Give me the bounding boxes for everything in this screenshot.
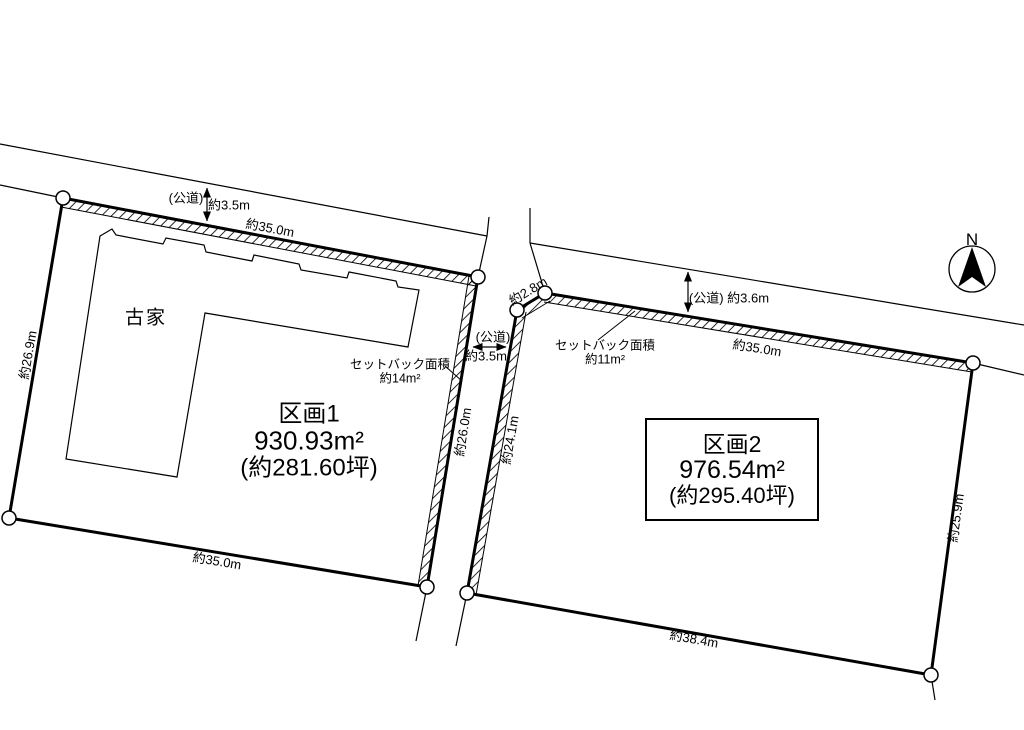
road-right-lower-edge <box>973 363 1024 375</box>
plot2-area-tsubo: (約295.40坪) <box>669 483 795 509</box>
plot1-area-sqm: 930.93m² <box>240 428 377 455</box>
road-left-type-label: (公道) <box>169 192 204 205</box>
road-middle-type-label: (公道) <box>476 331 511 344</box>
plot1-boundary <box>9 198 478 587</box>
land-plot-diagram: N (公道) 約3.5m (公道) 約3.5m (公道) 約3.6m 約35.0… <box>0 0 1024 730</box>
plot1-setback-title: セットバック面積 <box>350 359 450 373</box>
plot2-area-sqm: 976.54m² <box>679 457 785 483</box>
plot2-title-block: 区画2 976.54m² (約295.40坪) <box>645 418 819 521</box>
site-plan-drawing <box>0 0 1024 730</box>
north-compass <box>949 246 995 292</box>
road-middle-width-label: 約3.5m <box>465 350 507 363</box>
old-house-label: 古家 <box>125 303 167 330</box>
plot2-setback-area: 約11m² <box>555 353 655 367</box>
road-middle-east-extension <box>456 593 467 646</box>
road-junction-west-stub <box>487 217 489 236</box>
road-left-lower-edge <box>0 185 63 198</box>
road-right-label: (公道) 約3.6m <box>689 292 769 305</box>
plot1-area-tsubo: (約281.60坪) <box>240 455 377 482</box>
plot1-title-block: 区画1 930.93m² (約281.60坪) <box>240 401 377 482</box>
plot2-setback-title: セットバック面積 <box>555 340 655 354</box>
road-middle-west-extension <box>416 587 427 641</box>
plot1-setback-area: 約14m² <box>350 372 450 386</box>
plot1-setback-label: セットバック面積 約14m² <box>350 359 450 386</box>
plot2-name: 区画2 <box>703 431 762 457</box>
plot2-setback-label: セットバック面積 約11m² <box>555 340 655 367</box>
road-left-width-label: 約3.5m <box>208 199 250 212</box>
plot1-name: 区画1 <box>240 401 377 428</box>
compass-north-label: N <box>966 230 978 250</box>
